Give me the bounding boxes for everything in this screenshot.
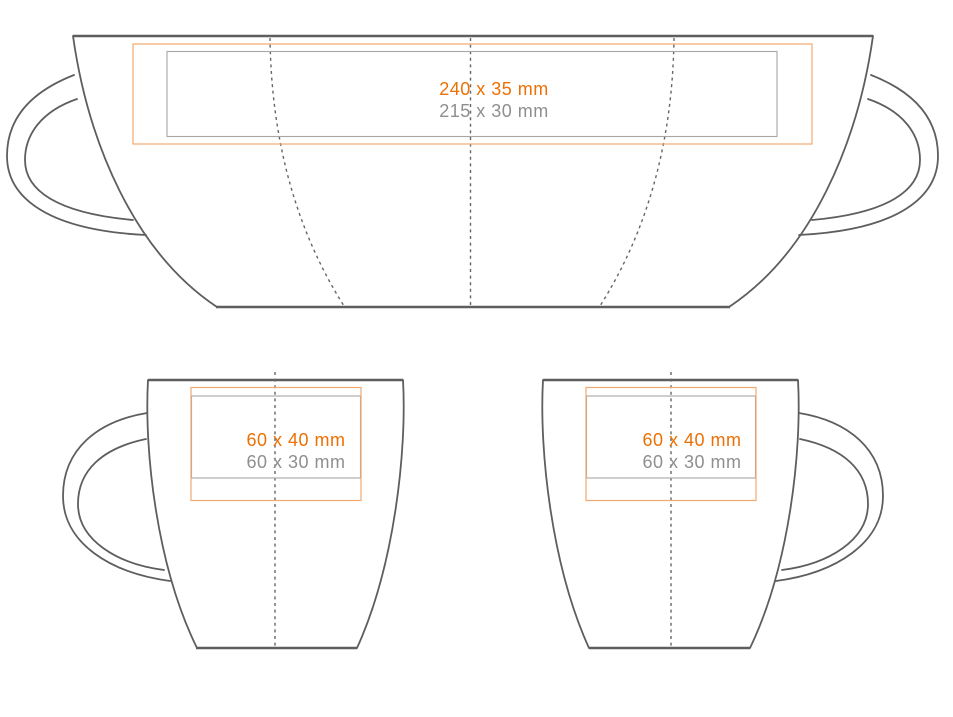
safe-area-size-label: 60 x 30 mm <box>246 452 345 472</box>
side-view-left-handle: 60 x 40 mm 60 x 30 mm <box>63 372 404 648</box>
left-handle-inner-outline <box>25 99 133 220</box>
mug-body-left-edge <box>147 380 197 648</box>
wrap-view: 240 x 35 mm 215 x 30 mm <box>7 36 938 307</box>
mug-imprint-template: 240 x 35 mm 215 x 30 mm 60 x 40 mm 60 x … <box>0 0 953 717</box>
mug-body-left-edge <box>542 380 589 648</box>
print-area-size-label: 60 x 40 mm <box>246 430 345 450</box>
wrap-guide-line-right <box>600 38 674 306</box>
print-area-size-label: 60 x 40 mm <box>642 430 741 450</box>
print-area-size-label: 240 x 35 mm <box>439 79 549 99</box>
wrap-guide-line-left <box>270 38 344 306</box>
side-view-right-handle: 60 x 40 mm 60 x 30 mm <box>542 372 883 648</box>
mug-body-left-edge <box>73 36 217 307</box>
safe-area-size-label: 60 x 30 mm <box>642 452 741 472</box>
mug-body-right-edge <box>750 380 799 648</box>
safe-area-size-label: 215 x 30 mm <box>439 101 549 121</box>
template-drawing: 240 x 35 mm 215 x 30 mm 60 x 40 mm 60 x … <box>0 0 953 717</box>
right-handle-inner-outline <box>812 99 920 220</box>
mug-body-right-edge <box>357 380 404 648</box>
mug-body-right-edge <box>729 36 873 307</box>
